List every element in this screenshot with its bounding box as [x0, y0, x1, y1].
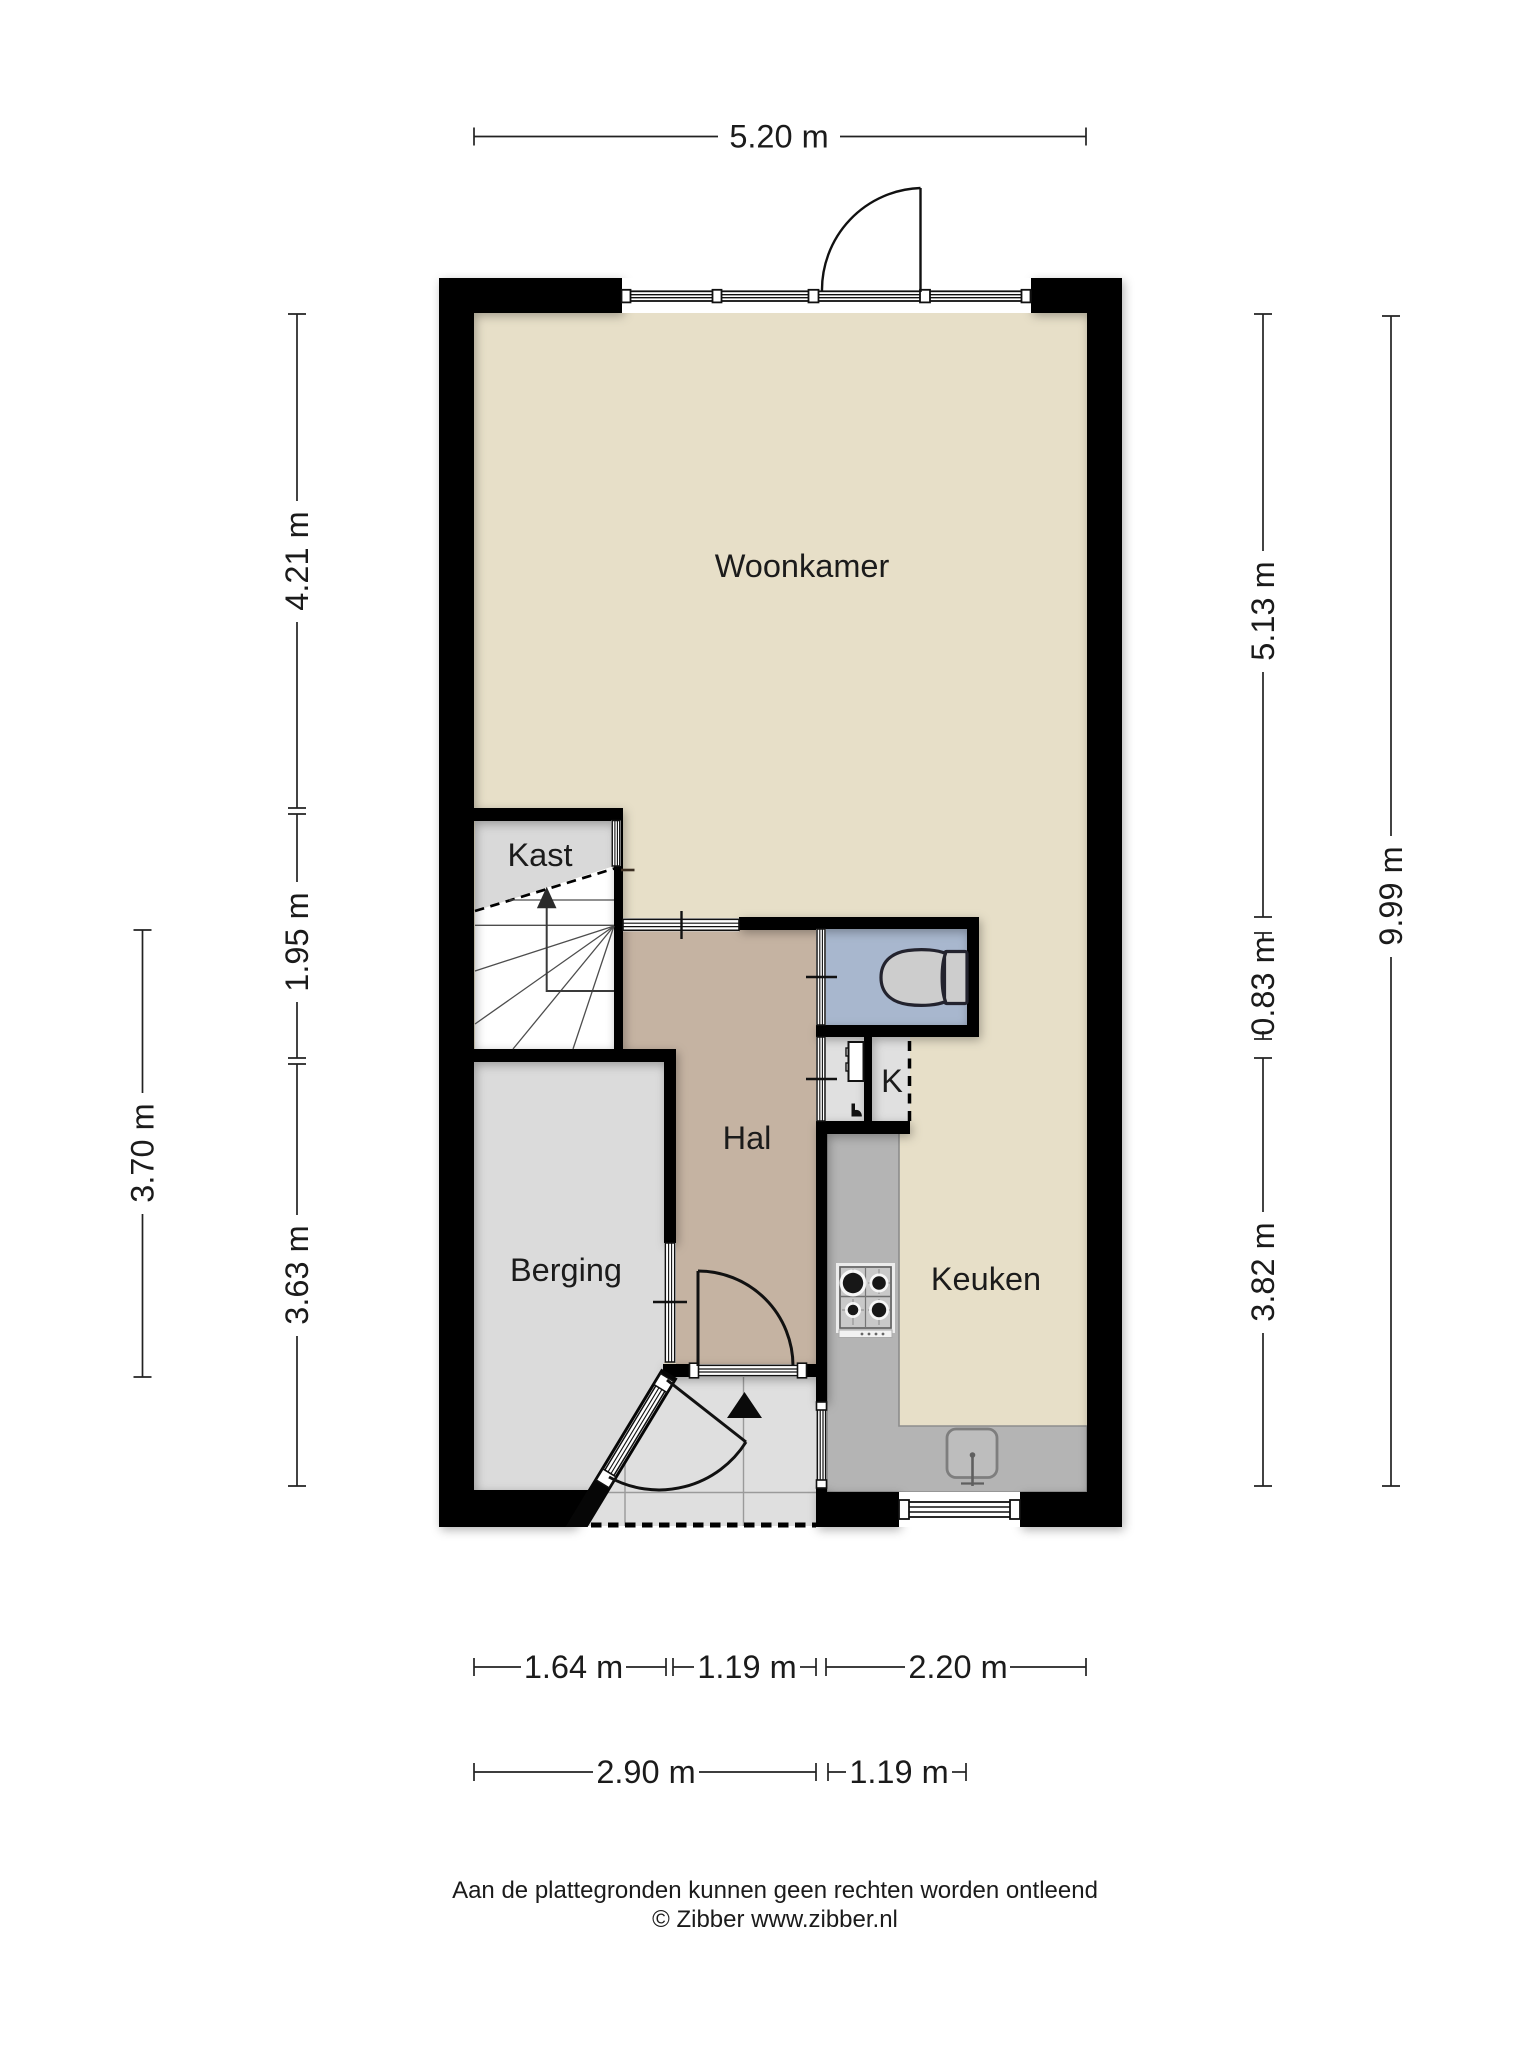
svg-text:1.19 m: 1.19 m: [697, 1649, 796, 1685]
svg-text:© Zibber www.zibber.nl: © Zibber www.zibber.nl: [652, 1906, 898, 1933]
svg-text:3.70 m: 3.70 m: [125, 1103, 161, 1202]
svg-text:0.83 m: 0.83 m: [1245, 936, 1281, 1035]
svg-text:Hal: Hal: [723, 1120, 772, 1156]
svg-text:9.99 m: 9.99 m: [1373, 846, 1409, 945]
svg-text:Berging: Berging: [510, 1252, 622, 1288]
svg-text:2.90 m: 2.90 m: [596, 1754, 695, 1790]
svg-text:4.21 m: 4.21 m: [279, 511, 315, 610]
svg-text:K: K: [881, 1063, 903, 1099]
svg-text:Kast: Kast: [507, 837, 572, 873]
svg-text:2.20 m: 2.20 m: [908, 1649, 1007, 1685]
svg-text:Keuken: Keuken: [931, 1261, 1041, 1297]
svg-text:5.13 m: 5.13 m: [1245, 561, 1281, 660]
svg-text:5.20 m: 5.20 m: [729, 119, 828, 155]
svg-text:3.82 m: 3.82 m: [1245, 1222, 1281, 1321]
svg-text:1.19 m: 1.19 m: [849, 1754, 948, 1790]
svg-text:Woonkamer: Woonkamer: [715, 548, 890, 584]
svg-text:Aan de plattegronden kunnen ge: Aan de plattegronden kunnen geen rechten…: [452, 1877, 1098, 1904]
svg-text:1.64 m: 1.64 m: [524, 1649, 623, 1685]
svg-text:1.95 m: 1.95 m: [279, 892, 315, 991]
svg-text:3.63 m: 3.63 m: [279, 1225, 315, 1324]
